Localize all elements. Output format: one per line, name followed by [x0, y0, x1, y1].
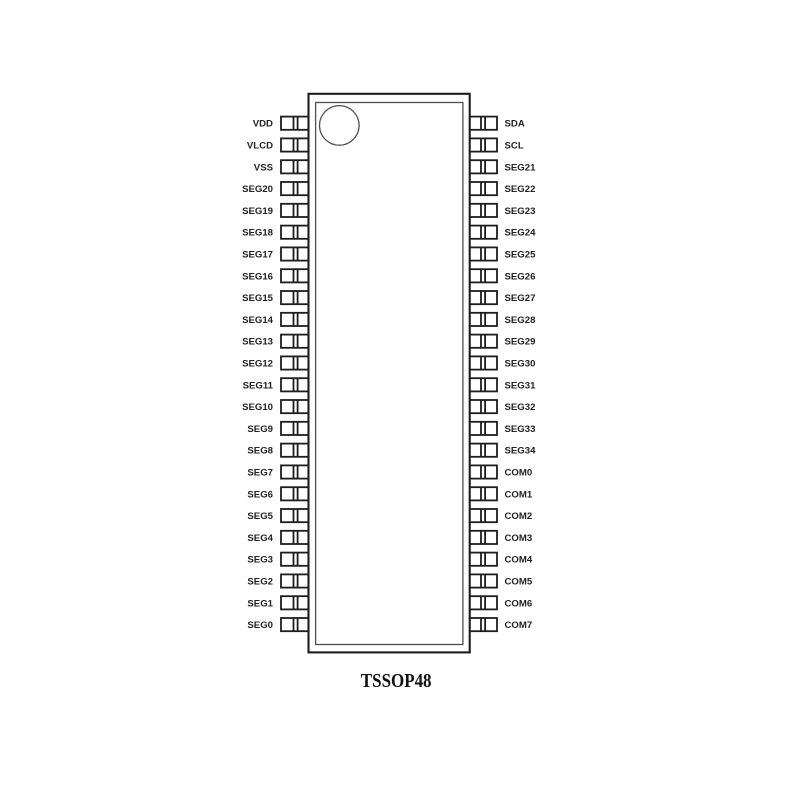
svg-text:SEG28: SEG28	[505, 315, 537, 326]
svg-text:COM1: COM1	[505, 489, 533, 500]
svg-text:SEG3: SEG3	[247, 555, 273, 566]
svg-text:COM7: COM7	[505, 620, 533, 631]
svg-text:COM5: COM5	[505, 577, 533, 588]
svg-text:COM2: COM2	[505, 511, 533, 522]
svg-text:SEG15: SEG15	[242, 293, 274, 304]
svg-text:SEG12: SEG12	[242, 359, 273, 370]
svg-text:COM3: COM3	[505, 533, 533, 544]
svg-text:TSSOP48: TSSOP48	[361, 671, 432, 692]
svg-text:SEG8: SEG8	[247, 446, 273, 457]
svg-text:SEG34: SEG34	[505, 446, 537, 457]
svg-text:SEG27: SEG27	[505, 293, 536, 304]
svg-text:SDA: SDA	[505, 119, 525, 130]
svg-text:SEG9: SEG9	[247, 424, 273, 435]
svg-text:SEG7: SEG7	[247, 468, 273, 479]
svg-text:COM6: COM6	[505, 598, 533, 609]
svg-text:SEG0: SEG0	[247, 620, 273, 631]
svg-text:VDD: VDD	[253, 119, 273, 130]
svg-text:SEG32: SEG32	[505, 402, 536, 413]
svg-text:SEG26: SEG26	[505, 271, 536, 282]
svg-text:SEG16: SEG16	[242, 271, 273, 282]
svg-text:SEG22: SEG22	[505, 184, 536, 195]
svg-text:SEG23: SEG23	[505, 206, 536, 217]
svg-text:SEG29: SEG29	[505, 337, 536, 348]
svg-text:SEG11: SEG11	[243, 380, 274, 391]
svg-text:COM0: COM0	[505, 468, 533, 479]
svg-text:SEG2: SEG2	[247, 577, 273, 588]
svg-text:SEG25: SEG25	[505, 250, 537, 261]
svg-text:SEG14: SEG14	[242, 315, 274, 326]
svg-text:SEG24: SEG24	[505, 228, 537, 239]
svg-text:SEG5: SEG5	[247, 511, 273, 522]
svg-text:VSS: VSS	[254, 162, 274, 173]
svg-text:SEG31: SEG31	[505, 380, 537, 391]
svg-text:SEG19: SEG19	[242, 206, 273, 217]
svg-text:SEG18: SEG18	[242, 228, 274, 239]
svg-text:SEG21: SEG21	[505, 162, 537, 173]
svg-text:SEG1: SEG1	[247, 598, 273, 609]
svg-text:COM4: COM4	[505, 555, 533, 566]
svg-text:VLCD: VLCD	[247, 141, 273, 152]
svg-text:SEG6: SEG6	[247, 489, 273, 500]
svg-text:SEG10: SEG10	[242, 402, 273, 413]
svg-text:SEG30: SEG30	[505, 359, 536, 370]
svg-text:SEG4: SEG4	[247, 533, 273, 544]
svg-text:SEG13: SEG13	[242, 337, 273, 348]
svg-text:SCL: SCL	[505, 141, 524, 152]
svg-text:SEG33: SEG33	[505, 424, 536, 435]
svg-text:SEG20: SEG20	[242, 184, 273, 195]
svg-text:SEG17: SEG17	[242, 250, 273, 261]
